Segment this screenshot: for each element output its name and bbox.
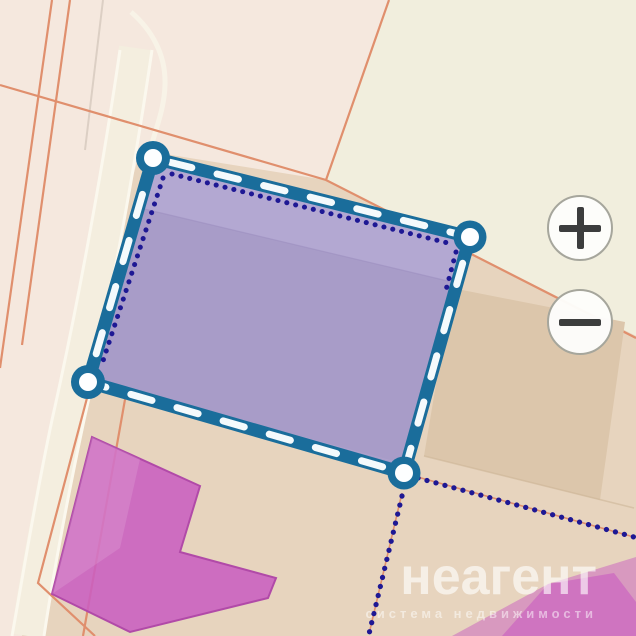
vertex-handle-bottom-left[interactable]: [71, 365, 105, 399]
zoom-in-button[interactable]: [547, 195, 613, 261]
vertex-handle-bottom-right[interactable]: [388, 457, 421, 490]
vertex-handle-top-right[interactable]: [454, 221, 487, 254]
minus-icon: [559, 319, 601, 326]
map-canvas[interactable]: [0, 0, 636, 636]
plus-icon: [577, 207, 584, 249]
zoom-out-button[interactable]: [547, 289, 613, 355]
vertex-handle-top-left[interactable]: [136, 141, 170, 175]
